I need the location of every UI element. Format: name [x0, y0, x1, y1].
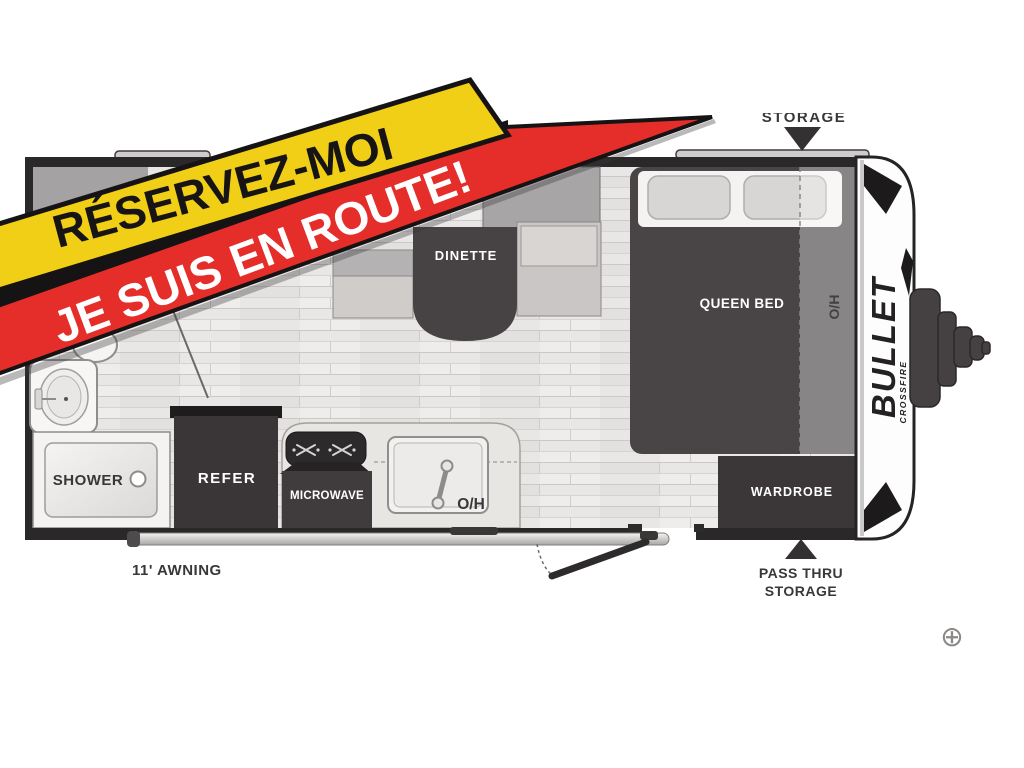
microwave-label: MICROWAVE	[290, 490, 364, 502]
dinette-label: DINETTE	[435, 248, 498, 263]
faucet-icon	[35, 389, 42, 409]
shower-label: SHOWER	[53, 472, 124, 489]
wardrobe-label: WARDROBE	[751, 485, 833, 499]
pass-thru-callout: PASS THRU STORAGE	[759, 539, 843, 599]
shower-pan: SHOWER	[33, 432, 170, 528]
shower-drain-icon	[131, 472, 146, 487]
entry-door	[537, 542, 646, 576]
refer-label: REFER	[198, 470, 256, 487]
microwave: MICROWAVE	[280, 462, 372, 528]
stove-cooktop	[286, 432, 366, 466]
queen-bed-label: QUEEN BED	[700, 296, 785, 311]
brand-logo: BULLET	[865, 275, 902, 418]
pillow	[648, 176, 730, 219]
zoom-in-icon[interactable]: ⊕	[940, 621, 963, 652]
dinette-table: DINETTE	[413, 227, 517, 341]
storage-top-label: STORAGE	[762, 109, 846, 126]
refrigerator: REFER	[170, 406, 282, 528]
overhead-bedroom-label: O/H	[826, 295, 842, 320]
overhead-kitchen-label: O/H	[457, 496, 485, 513]
pass-thru-arrow-up-icon	[785, 539, 817, 559]
bathroom-sink	[30, 360, 97, 433]
storage-arrow-down-icon	[784, 127, 821, 151]
floorplan-canvas: SHOWER REFER O/H	[0, 0, 1024, 768]
dinette-bench-left	[333, 250, 413, 318]
awning-label: 11' AWNING	[132, 562, 222, 579]
dinette-bench-right	[517, 222, 601, 316]
hitch	[910, 289, 990, 407]
door-frame	[694, 524, 704, 532]
front-cap: BULLET CROSSFIRE	[856, 157, 914, 539]
pass-thru-label-2: STORAGE	[765, 583, 837, 599]
brand-sub-logo: CROSSFIRE	[898, 360, 908, 423]
floorplan-listing-image: SHOWER REFER O/H	[0, 0, 1024, 768]
wardrobe: WARDROBE	[718, 456, 866, 528]
storage-callout-top: STORAGE	[762, 109, 846, 151]
queen-bed: QUEEN BED O/H	[630, 167, 868, 454]
pass-thru-label-1: PASS THRU	[759, 565, 843, 581]
